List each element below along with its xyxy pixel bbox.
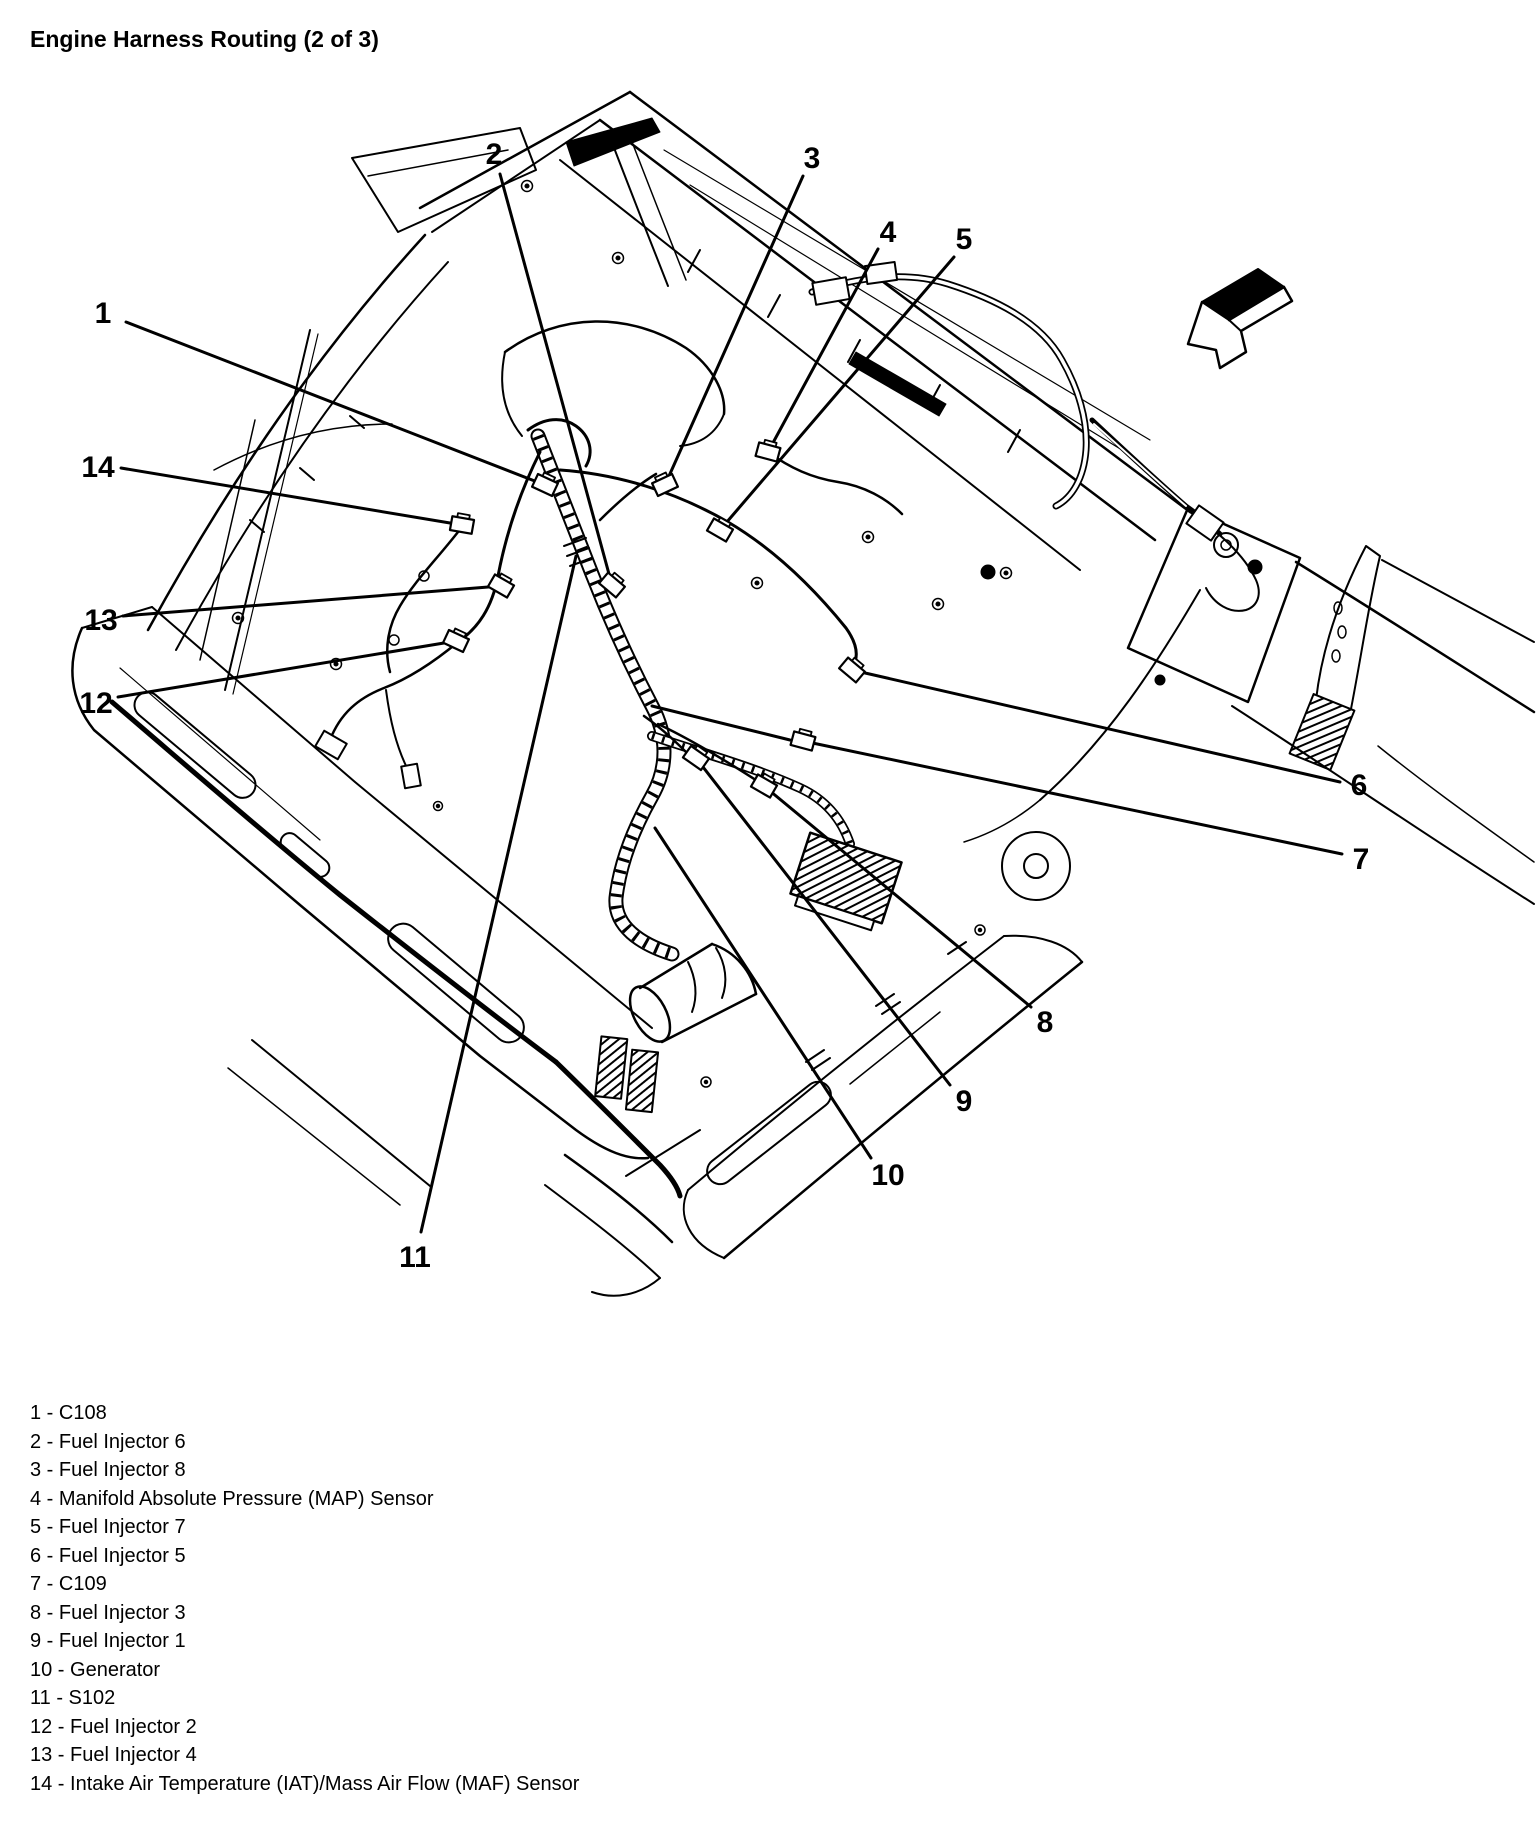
leader-line-12 <box>118 641 456 697</box>
legend-item-9: 9 - Fuel Injector 1 <box>30 1627 579 1656</box>
leader-line-4 <box>768 249 878 452</box>
legend-item-8: 8 - Fuel Injector 3 <box>30 1599 579 1628</box>
legend-item-11: 11 - S102 <box>30 1684 579 1713</box>
callout-number-12: 12 <box>79 687 112 720</box>
harness-bracket-grommet <box>1002 832 1070 900</box>
callout-number-8: 8 <box>1037 1006 1054 1039</box>
leader-line-7 <box>803 741 1342 854</box>
legend-item-6: 6 - Fuel Injector 5 <box>30 1542 579 1571</box>
right-body-panel <box>964 508 1534 904</box>
leader-line-14 <box>121 468 462 525</box>
callout-number-10: 10 <box>871 1159 904 1192</box>
callout-number-7: 7 <box>1353 843 1370 876</box>
hanging-connectors <box>594 1036 659 1112</box>
leader-line-2 <box>500 174 612 585</box>
legend-item-12: 12 - Fuel Injector 2 <box>30 1713 579 1742</box>
legend-item-2: 2 - Fuel Injector 6 <box>30 1428 579 1457</box>
callout-number-9: 9 <box>956 1085 973 1118</box>
legend-item-4: 4 - Manifold Absolute Pressure (MAP) Sen… <box>30 1485 579 1514</box>
callout-number-6: 6 <box>1351 769 1368 802</box>
legend-item-7: 7 - C109 <box>30 1570 579 1599</box>
connector-glyph-6 <box>839 655 867 683</box>
callout-number-11: 11 <box>399 1241 431 1274</box>
legend-item-10: 10 - Generator <box>30 1656 579 1685</box>
leader-line-11 <box>421 556 576 1232</box>
leader-line-13 <box>123 586 501 616</box>
leader-line-1 <box>126 322 545 485</box>
callout-number-4: 4 <box>880 216 897 249</box>
legend-item-14: 14 - Intake Air Temperature (IAT)/Mass A… <box>30 1770 579 1799</box>
callout-number-14: 14 <box>81 451 115 484</box>
connector-glyph-4 <box>756 439 782 462</box>
legend-item-1: 1 - C108 <box>30 1399 579 1428</box>
direction-arrow-icon <box>1188 269 1292 368</box>
cowl-panel <box>420 92 1259 611</box>
callout-number-5: 5 <box>956 223 973 256</box>
hood-side-rail <box>72 607 680 1296</box>
callout-number-3: 3 <box>804 142 821 175</box>
callout-number-13: 13 <box>84 604 117 637</box>
legend-item-5: 5 - Fuel Injector 7 <box>30 1513 579 1542</box>
service-manual-page: { "title": "Engine Harness Routing (2 of… <box>0 0 1536 1840</box>
generator <box>622 944 756 1048</box>
callout-number-1: 1 <box>95 297 112 330</box>
junction-block <box>787 833 901 933</box>
connector-glyph-14 <box>450 512 475 534</box>
connector-glyph-7 <box>791 728 817 751</box>
legend-item-13: 13 - Fuel Injector 4 <box>30 1741 579 1770</box>
callout-number-2: 2 <box>486 138 503 171</box>
legend-item-3: 3 - Fuel Injector 8 <box>30 1456 579 1485</box>
connector-glyph-12 <box>443 626 471 652</box>
cowl-connector-a <box>812 277 849 305</box>
legend: 1 - C1082 - Fuel Injector 63 - Fuel Inje… <box>30 1399 579 1798</box>
